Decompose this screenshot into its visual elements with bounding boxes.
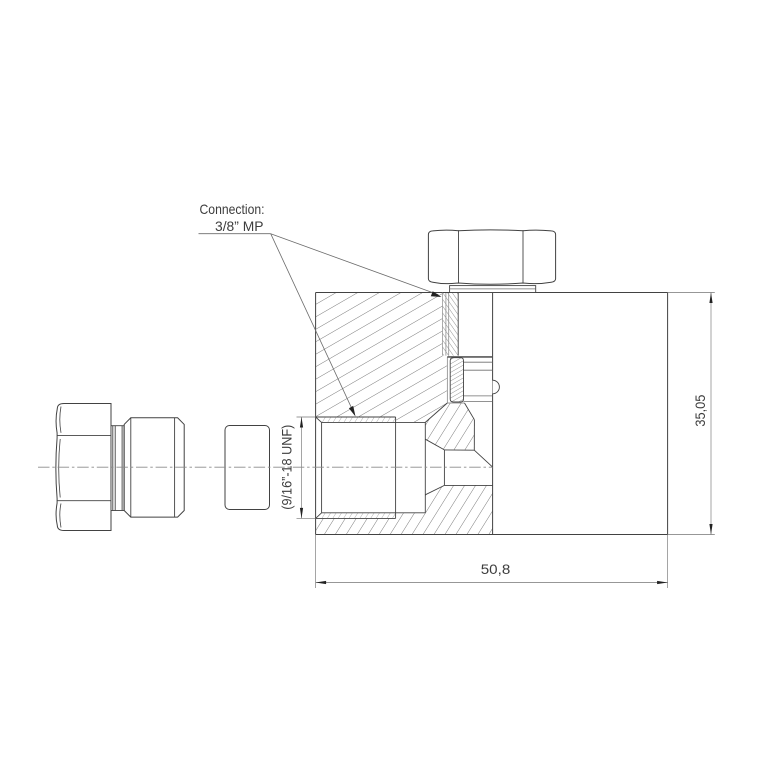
svg-text:Connection:: Connection: — [200, 202, 265, 217]
svg-text:3/8” MP: 3/8” MP — [215, 219, 264, 234]
svg-text:50,8: 50,8 — [481, 561, 511, 577]
svg-text:35,05: 35,05 — [692, 394, 708, 426]
